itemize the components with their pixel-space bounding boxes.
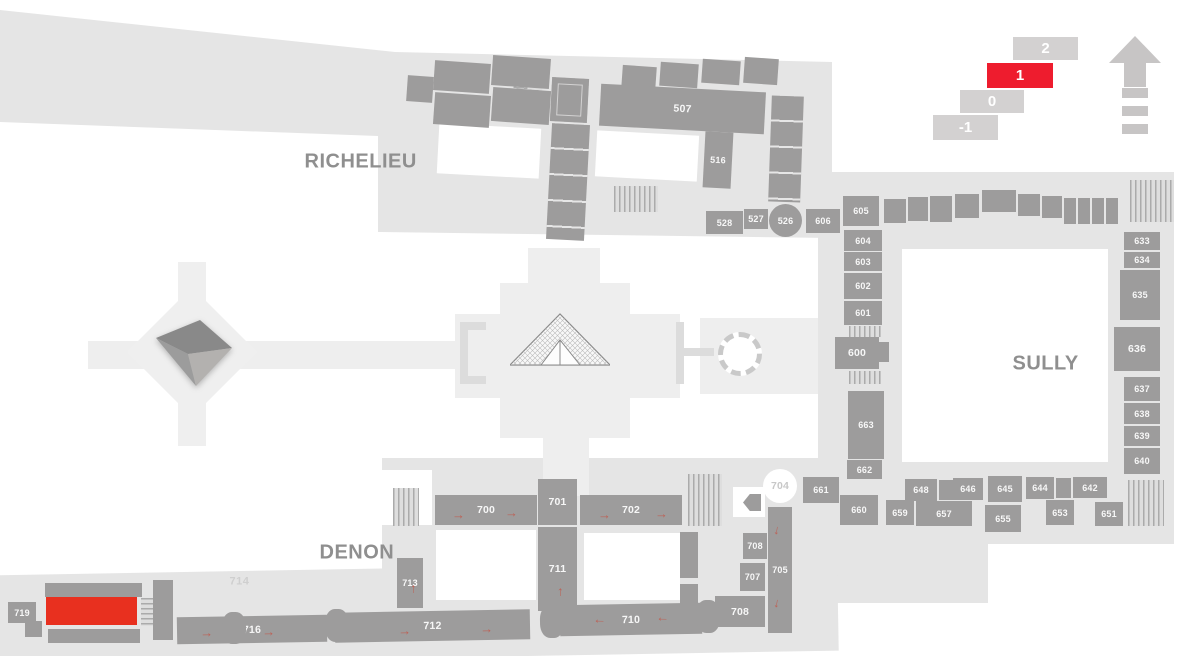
building-footprint xyxy=(684,348,714,356)
map-room[interactable] xyxy=(550,77,589,123)
floor-button-1[interactable]: 1 xyxy=(987,63,1053,88)
map-room-710[interactable]: 710 xyxy=(560,603,703,636)
north-arrow-icon xyxy=(1108,36,1162,140)
route-arrow-icon: → xyxy=(405,582,418,596)
map-room-708[interactable]: 708 xyxy=(743,533,767,559)
map-room-653[interactable]: 653 xyxy=(1046,500,1074,525)
map-room-659[interactable]: 659 xyxy=(886,500,914,525)
map-room-507[interactable]: 507 xyxy=(599,84,766,135)
map-room-634[interactable]: 634 xyxy=(1124,252,1160,268)
map-room[interactable] xyxy=(930,196,952,222)
map-room[interactable] xyxy=(222,612,247,644)
map-room-712[interactable]: 712 xyxy=(335,609,530,642)
map-room-selected[interactable] xyxy=(46,597,137,625)
north-arrow-neck xyxy=(1124,62,1146,87)
map-room[interactable] xyxy=(45,583,142,597)
map-room[interactable] xyxy=(768,95,804,202)
route-arrow-icon: → xyxy=(398,624,412,637)
map-room[interactable] xyxy=(1056,478,1071,498)
map-room-707[interactable]: 707 xyxy=(740,563,765,591)
map-room-701[interactable]: 701 xyxy=(538,479,577,525)
route-arrow-icon: → xyxy=(655,507,669,520)
map-room-661[interactable]: 661 xyxy=(803,477,839,503)
courtyard xyxy=(584,533,680,600)
building-footprint xyxy=(460,322,468,384)
map-room-660[interactable]: 660 xyxy=(840,495,878,525)
map-room-601[interactable]: 601 xyxy=(844,301,882,325)
stairs-icon xyxy=(1128,480,1164,526)
map-room-642[interactable]: 642 xyxy=(1073,477,1107,498)
map-room[interactable] xyxy=(696,600,721,633)
map-room[interactable] xyxy=(491,87,551,125)
map-room[interactable] xyxy=(659,62,699,89)
building-footprint xyxy=(460,322,486,330)
floor-button-2[interactable]: 2 xyxy=(1013,37,1078,60)
map-room[interactable] xyxy=(433,92,491,128)
map-room-527[interactable]: 527 xyxy=(744,209,768,229)
route-arrow-icon: → xyxy=(655,615,669,628)
wing-label-richelieu: RICHELIEU xyxy=(305,151,306,152)
map-room-663[interactable]: 663 xyxy=(848,391,884,459)
map-room[interactable] xyxy=(743,57,779,85)
map-room-651[interactable]: 651 xyxy=(1095,502,1123,526)
map-room[interactable] xyxy=(877,342,889,362)
map-room[interactable] xyxy=(955,194,979,218)
stairs-icon xyxy=(614,186,658,212)
map-room[interactable] xyxy=(48,629,140,643)
wing-label-sully: SULLY xyxy=(1013,353,1014,354)
map-room-602[interactable]: 602 xyxy=(844,273,882,299)
map-room[interactable] xyxy=(540,605,565,638)
map-room-637[interactable]: 637 xyxy=(1124,377,1160,401)
north-arrow-dash xyxy=(1122,88,1148,98)
stairs-icon xyxy=(1130,180,1174,222)
building-footprint xyxy=(460,376,486,384)
carrousel-roundabout xyxy=(718,332,762,376)
floor-button--1[interactable]: -1 xyxy=(933,115,998,140)
courtyard xyxy=(437,123,541,178)
wing-label-714: 714 xyxy=(230,576,231,577)
map-room-526[interactable]: 526 xyxy=(769,204,802,237)
map-room[interactable] xyxy=(546,123,590,241)
stairs-icon xyxy=(849,371,881,384)
map-room-605[interactable]: 605 xyxy=(843,196,879,226)
map-room-639[interactable]: 639 xyxy=(1124,426,1160,446)
building-footprint xyxy=(528,248,600,290)
building-footprint xyxy=(676,322,684,384)
map-room[interactable] xyxy=(939,480,953,500)
map-room-704[interactable]: 704 xyxy=(763,469,797,503)
route-arrow-icon: → xyxy=(552,585,565,599)
map-room-644[interactable]: 644 xyxy=(1026,477,1054,499)
route-arrow-icon: → xyxy=(262,625,276,638)
stairs-icon xyxy=(849,326,881,337)
courtyard xyxy=(595,130,699,181)
building-footprint xyxy=(178,398,206,446)
wing-label-denon: DENON xyxy=(320,542,321,543)
map-room[interactable] xyxy=(325,609,350,642)
map-room-657[interactable]: 657 xyxy=(916,501,972,526)
map-room[interactable] xyxy=(491,55,551,89)
map-room[interactable] xyxy=(982,190,1016,212)
map-room-528[interactable]: 528 xyxy=(706,211,743,234)
north-arrow-head xyxy=(1109,36,1161,63)
north-arrow-dash xyxy=(1122,106,1148,116)
route-arrow-icon: → xyxy=(452,508,466,521)
map-room[interactable] xyxy=(1042,196,1062,218)
map-room-606[interactable]: 606 xyxy=(806,209,840,233)
map-room-648[interactable]: 648 xyxy=(905,479,937,501)
louvre-pyramid-icon xyxy=(510,313,610,366)
map-room-636[interactable]: 636 xyxy=(1114,327,1160,371)
map-room-708[interactable]: 708 xyxy=(715,596,765,627)
map-room[interactable] xyxy=(701,59,741,86)
map-room[interactable] xyxy=(433,60,491,94)
louvre-floor-map: 5075165285275266066056046036026016006636… xyxy=(0,0,1186,656)
route-arrow-icon: → xyxy=(505,506,519,519)
map-room-604[interactable]: 604 xyxy=(844,230,882,251)
map-room-600[interactable]: 600 xyxy=(835,337,879,369)
inverted-pyramid-icon xyxy=(150,316,236,388)
map-room[interactable] xyxy=(908,197,928,221)
map-room[interactable] xyxy=(680,532,698,578)
map-room-638[interactable]: 638 xyxy=(1124,403,1160,424)
route-arrow-icon: → xyxy=(771,596,786,612)
map-room-603[interactable]: 603 xyxy=(844,252,882,271)
route-arrow-icon: → xyxy=(598,508,612,521)
map-room[interactable] xyxy=(1064,198,1120,224)
route-arrow-icon: → xyxy=(200,626,214,639)
map-room-655[interactable]: 655 xyxy=(985,505,1021,532)
north-arrow-dash xyxy=(1122,124,1148,134)
map-room[interactable] xyxy=(884,199,906,223)
map-room-640[interactable]: 640 xyxy=(1124,448,1160,474)
floor-button-0[interactable]: 0 xyxy=(960,90,1024,113)
map-room[interactable] xyxy=(1018,194,1040,216)
stairs-icon xyxy=(688,474,722,526)
map-room-516[interactable]: 516 xyxy=(703,131,734,188)
map-room-700[interactable]: 700 xyxy=(435,495,537,525)
route-arrow-icon: → xyxy=(592,617,606,630)
building-footprint xyxy=(178,262,206,308)
map-room-719[interactable]: 719 xyxy=(8,602,36,623)
stairs-icon xyxy=(393,488,419,526)
map-room[interactable] xyxy=(25,621,42,637)
courtyard xyxy=(436,530,536,600)
route-arrow-icon: → xyxy=(480,622,494,635)
map-room[interactable] xyxy=(153,580,173,640)
map-room[interactable] xyxy=(406,75,434,103)
map-room-662[interactable]: 662 xyxy=(847,460,882,479)
map-room-635[interactable]: 635 xyxy=(1120,270,1160,320)
map-room-646[interactable]: 646 xyxy=(953,478,983,500)
map-room-645[interactable]: 645 xyxy=(988,476,1022,502)
route-arrow-icon: → xyxy=(771,523,786,539)
map-room-633[interactable]: 633 xyxy=(1124,232,1160,250)
